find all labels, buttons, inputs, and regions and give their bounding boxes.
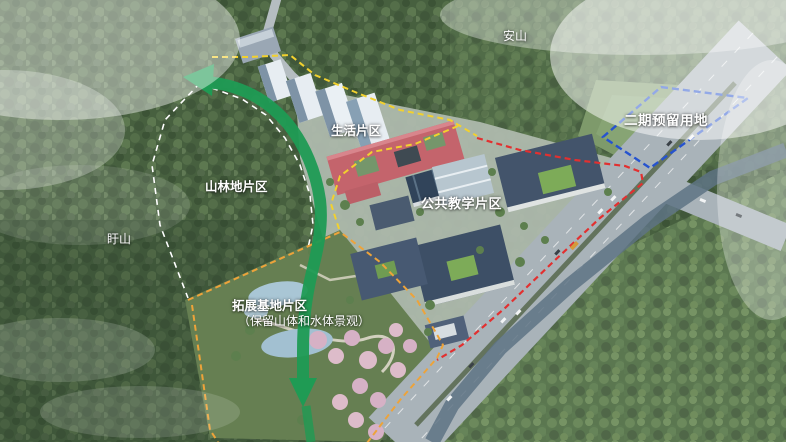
- masterplan-rendering: 安山 二期预留用地 生活片区 山林地片区 盱山 公共教学片区 拓展基地片区 （保…: [0, 0, 786, 442]
- aerial-scene: [0, 0, 786, 442]
